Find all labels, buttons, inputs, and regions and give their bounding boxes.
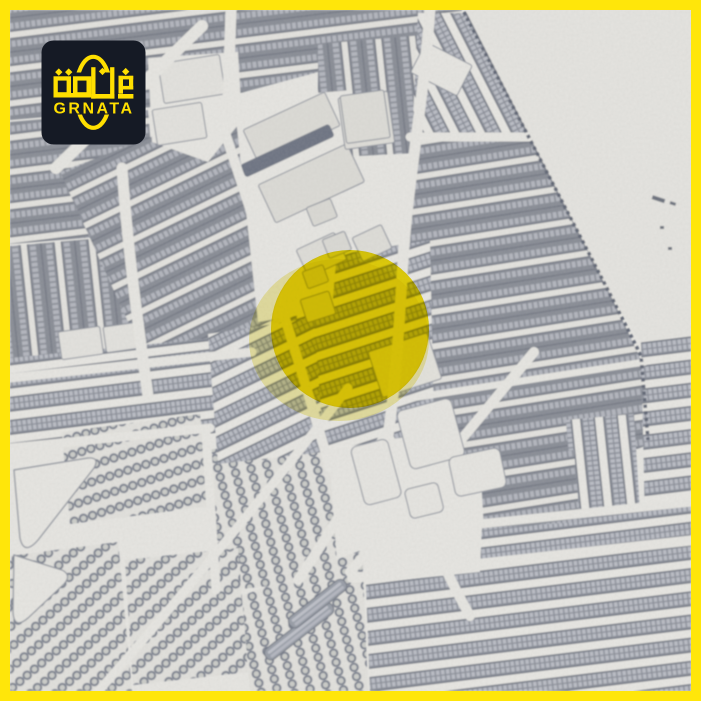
- svg-text:GRNATA: GRNATA: [53, 100, 134, 117]
